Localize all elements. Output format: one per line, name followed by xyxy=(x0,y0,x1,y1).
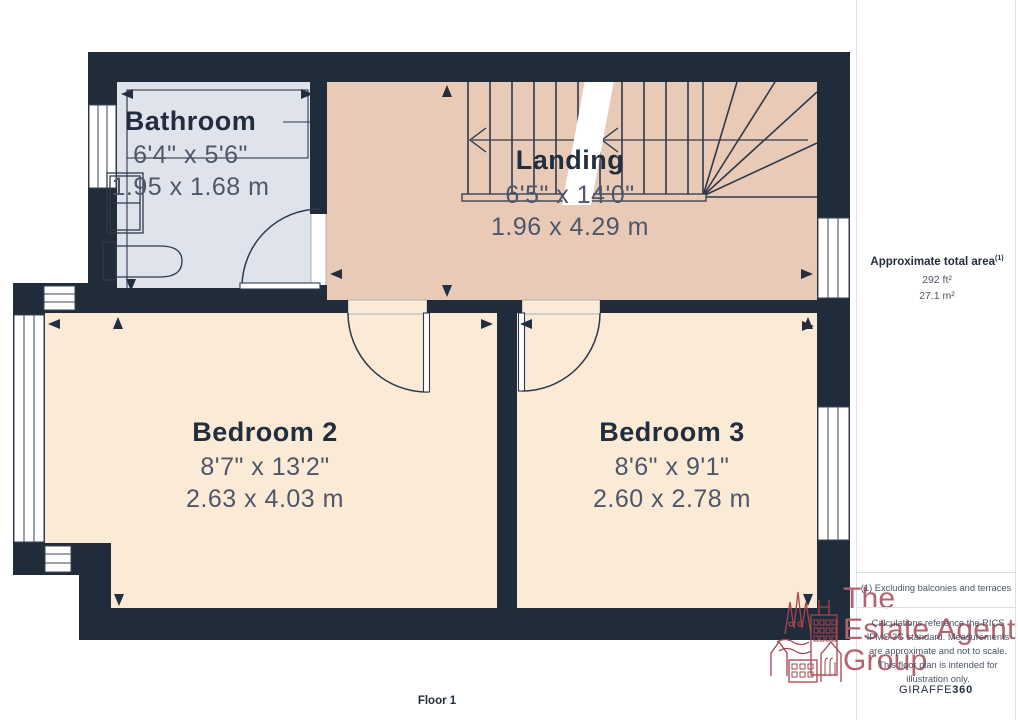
footnote-text: (1) Excluding balconies and terraces xyxy=(858,583,1014,593)
bathroom-floor xyxy=(100,70,320,300)
wall-landing-bottom-segment xyxy=(600,300,817,313)
wall-bottom xyxy=(79,608,850,640)
river-wave xyxy=(777,640,809,645)
door-leaf-bedroom2 xyxy=(424,313,430,392)
giraffe360-brand: GIRAFFE360 xyxy=(858,684,1014,696)
bedroom3-floor xyxy=(517,305,822,620)
room-floors xyxy=(45,70,828,620)
total-area-title: Approximate total area(1) xyxy=(860,255,1014,268)
house-icon xyxy=(771,642,787,676)
brand-name: GIRAFFE xyxy=(899,684,952,696)
wall-bedroom-partition xyxy=(497,300,517,608)
church-icon xyxy=(821,642,841,682)
window-left-jog-top xyxy=(44,286,75,310)
wall-bathroom-bottom xyxy=(88,288,327,313)
church-arches xyxy=(825,658,835,676)
sidebar-rule xyxy=(857,607,1015,608)
floor-label: Floor 1 xyxy=(0,695,874,707)
total-area-panel: Approximate total area(1) 292 ft² 27.1 m… xyxy=(860,255,1014,304)
window-left-jog-bottom xyxy=(45,546,71,572)
door-threshold xyxy=(522,300,600,314)
wall-right xyxy=(817,52,850,640)
window-landing-right xyxy=(818,218,849,298)
wall-landing-bottom-segment xyxy=(327,300,348,313)
terrace-windows xyxy=(792,664,813,677)
total-area-imperial: 292 ft² xyxy=(860,273,1014,288)
door-threshold xyxy=(348,300,427,314)
wall-bathroom-right-upper xyxy=(310,82,327,214)
total-area-metric: 27.1 m² xyxy=(860,289,1014,304)
window-bedroom2-left xyxy=(14,315,44,542)
wall-top xyxy=(88,52,850,82)
sidebar-rule xyxy=(857,572,1015,573)
door-threshold xyxy=(311,213,326,286)
brand-suffix: 360 xyxy=(952,684,973,696)
footnote-ref: (1) xyxy=(995,255,1004,262)
terrace-building-icon xyxy=(789,660,817,682)
disclaimer-text: Calculations reference the RICS IPMS 3C … xyxy=(862,617,1014,687)
window-bedroom3-right xyxy=(818,407,849,540)
door-leaf-bathroom xyxy=(240,283,320,289)
floorplan-page: Bathroom 6'4" x 5'6" 1.95 x 1.68 m Landi… xyxy=(0,0,1018,720)
